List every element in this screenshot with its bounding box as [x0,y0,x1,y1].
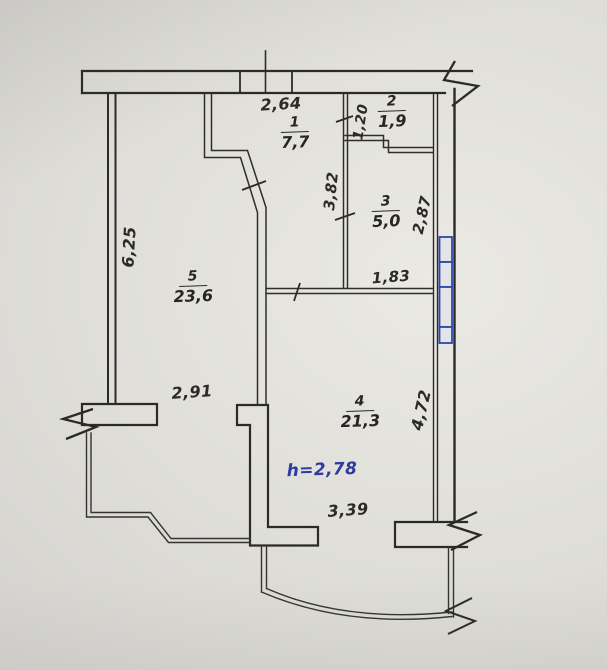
room-2-label: 2 1,9 [377,94,407,130]
room-4-area: 21,3 [340,412,380,430]
room-4-number: 4 [346,394,374,412]
room-4-label: 4 21,3 [340,394,381,430]
room-3-number: 3 [372,194,400,212]
dim-top-width: 2,64 [260,93,302,114]
break-mark-top-right [444,61,478,106]
floor-plan-drawing [0,0,607,670]
room-1-label: 1 7,7 [280,115,310,151]
outer-walls [82,51,472,547]
dim-room3-width: 1,83 [371,267,411,288]
room-1-area: 7,7 [281,133,310,151]
dim-room5-height: 6,25 [118,226,139,268]
ceiling-height-note: h=2,78 [286,459,357,481]
room-1-number: 1 [281,115,309,133]
dim-room5-width: 2,91 [171,381,213,403]
room-2-number: 2 [378,94,406,112]
room-2-area: 1,9 [378,112,407,130]
interior-walls [205,93,434,405]
tick-entry-diagonal [242,181,266,190]
floor-plan-photo: 1 7,7 2 1,9 3 5,0 4 21,3 5 23,6 2,64 1,2… [0,0,607,670]
room-3-area: 5,0 [372,212,401,230]
balcony-outline-left [87,433,251,543]
dim-room4-width: 3,39 [327,499,369,521]
room-3-label: 3 5,0 [371,194,401,230]
tick-wall-382 [335,213,355,220]
room-5-label: 5 23,6 [173,269,214,305]
balcony-outline-bottom [262,546,454,620]
room-5-number: 5 [179,269,207,287]
tick-wall-room4 [294,283,300,301]
room-5-area: 23,6 [173,287,213,305]
tick-wall-120 [336,116,353,122]
window-icon [440,237,453,343]
